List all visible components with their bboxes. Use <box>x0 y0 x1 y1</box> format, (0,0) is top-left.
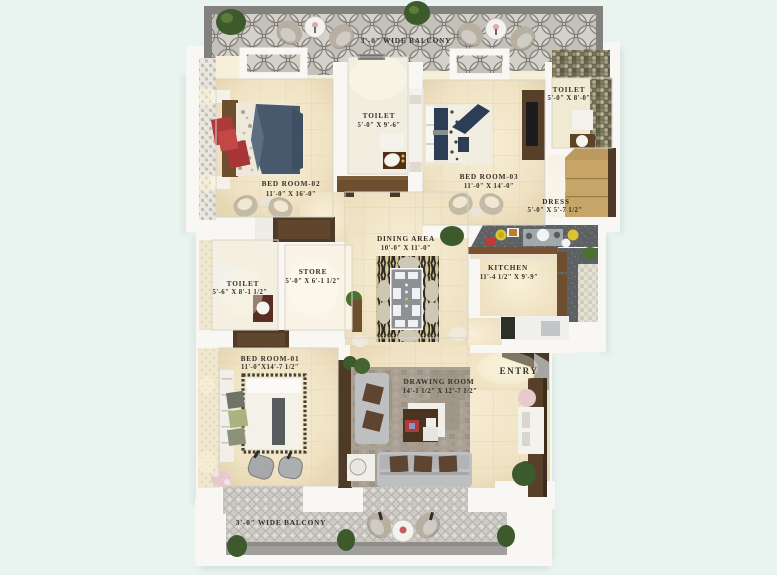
svg-text:11'-0" X 14'-0": 11'-0" X 14'-0" <box>464 183 514 190</box>
svg-text:BED ROOM-01: BED ROOM-01 <box>241 354 300 363</box>
svg-text:5'-0" X 6'-1 1/2": 5'-0" X 6'-1 1/2" <box>286 278 341 285</box>
svg-text:BED ROOM-03: BED ROOM-03 <box>460 172 519 181</box>
svg-text:11'-0" X 16'-0": 11'-0" X 16'-0" <box>266 191 316 198</box>
svg-text:10'-0" X 11'-0": 10'-0" X 11'-0" <box>381 245 431 252</box>
svg-text:5'-0" X 9'-6": 5'-0" X 9'-6" <box>358 122 401 129</box>
svg-text:DRESS: DRESS <box>542 197 570 206</box>
svg-text:14'-1 1/2" X 12'-7 1/2": 14'-1 1/2" X 12'-7 1/2" <box>403 388 478 395</box>
svg-text:11'-4 1/2" X 9'-9": 11'-4 1/2" X 9'-9" <box>480 274 538 281</box>
svg-text:5'-6" X 8'-1 1/2": 5'-6" X 8'-1 1/2" <box>213 289 268 296</box>
svg-text:TOILET: TOILET <box>553 85 586 94</box>
svg-text:KITCHEN: KITCHEN <box>488 263 528 272</box>
svg-text:DINING AREA: DINING AREA <box>377 234 435 243</box>
svg-text:TOILET: TOILET <box>227 279 260 288</box>
svg-text:11'-0"X14'-7 1/2": 11'-0"X14'-7 1/2" <box>241 364 299 371</box>
svg-text:ENTRY: ENTRY <box>500 366 539 376</box>
svg-text:BED ROOM-02: BED ROOM-02 <box>262 179 321 188</box>
svg-text:3'-0" WIDE BALCONY: 3'-0" WIDE BALCONY <box>361 36 451 45</box>
svg-text:DRAWING ROOM: DRAWING ROOM <box>403 377 474 386</box>
svg-text:5'-0" X 8'-0": 5'-0" X 8'-0" <box>548 95 591 102</box>
svg-text:TOILET: TOILET <box>363 111 396 120</box>
svg-text:3'-0" WIDE BALCONY: 3'-0" WIDE BALCONY <box>236 518 326 527</box>
svg-text:STORE: STORE <box>299 267 328 276</box>
svg-text:5'-0" X 5'-7 1/2": 5'-0" X 5'-7 1/2" <box>528 207 583 214</box>
